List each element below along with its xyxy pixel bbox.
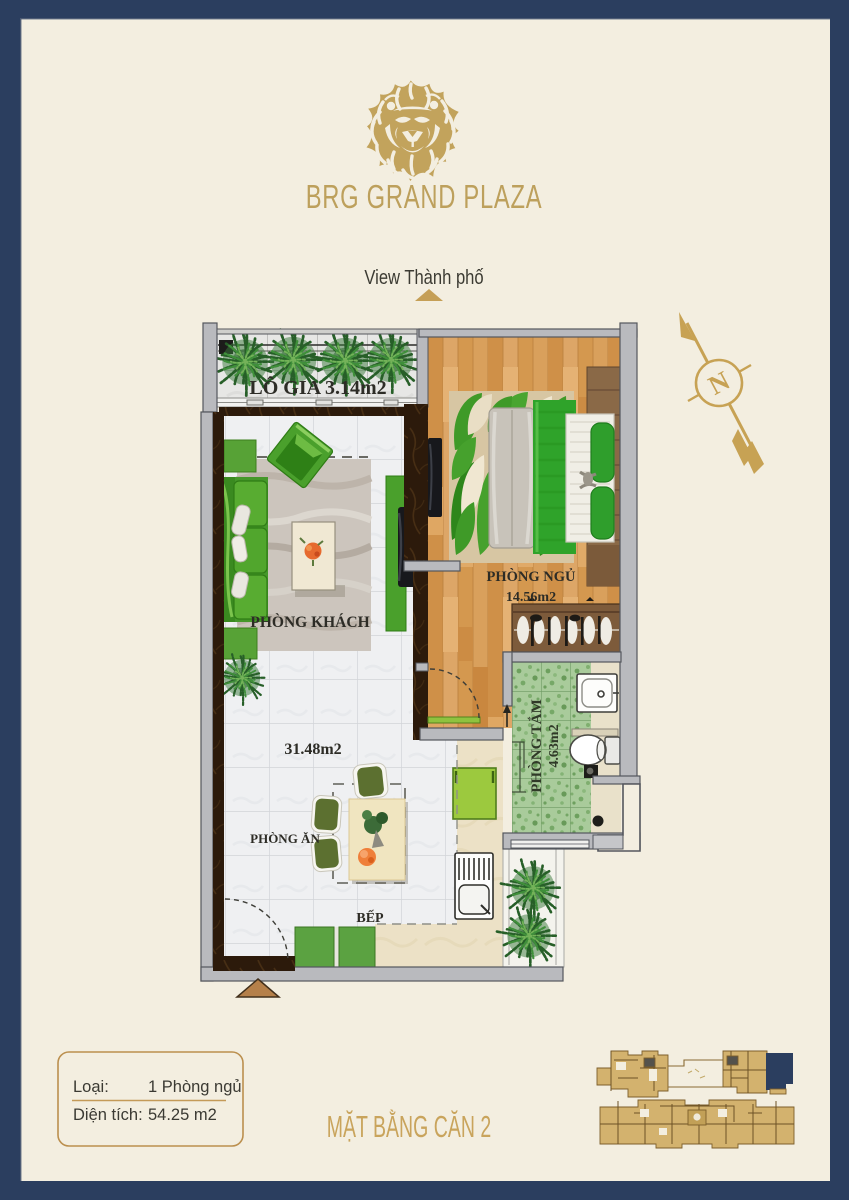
svg-text:PHÒNG KHÁCH: PHÒNG KHÁCH xyxy=(250,614,369,631)
svg-text:31.48m2: 31.48m2 xyxy=(284,741,341,758)
svg-text:1 Phòng ngủ: 1 Phòng ngủ xyxy=(148,1078,242,1096)
svg-text:View Thành phố: View Thành phố xyxy=(364,266,483,289)
svg-text:PHÒNG NGỦ: PHÒNG NGỦ xyxy=(486,568,576,585)
svg-text:MẶT BẰNG CĂN 2: MẶT BẰNG CĂN 2 xyxy=(327,1109,491,1144)
svg-text:Diện tích:: Diện tích: xyxy=(73,1106,143,1124)
svg-text:Loại:: Loại: xyxy=(73,1078,109,1096)
svg-text:PHÒNG TẮM: PHÒNG TẮM xyxy=(528,699,545,792)
svg-text:BẾP: BẾP xyxy=(356,909,384,926)
svg-text:BRG GRAND PLAZA: BRG GRAND PLAZA xyxy=(306,179,543,216)
svg-text:4.63m2: 4.63m2 xyxy=(547,724,562,767)
svg-text:PHÒNG ĂN: PHÒNG ĂN xyxy=(250,831,320,846)
svg-text:LÔ GIA 3.14m2: LÔ GIA 3.14m2 xyxy=(249,375,386,399)
svg-text:14.56m2: 14.56m2 xyxy=(506,590,556,605)
svg-text:54.25 m2: 54.25 m2 xyxy=(148,1106,217,1124)
